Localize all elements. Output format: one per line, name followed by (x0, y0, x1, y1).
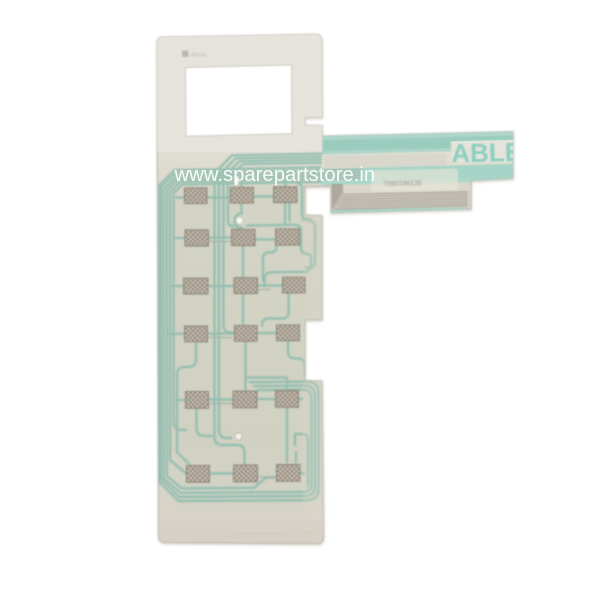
svg-text:ABLE: ABLE (451, 137, 522, 169)
svg-text:7090196135: 7090196135 (383, 180, 422, 188)
svg-text:www.sparepartstore.in: www.sparepartstore.in (174, 164, 376, 186)
svg-text:elissa: elissa (191, 53, 207, 59)
